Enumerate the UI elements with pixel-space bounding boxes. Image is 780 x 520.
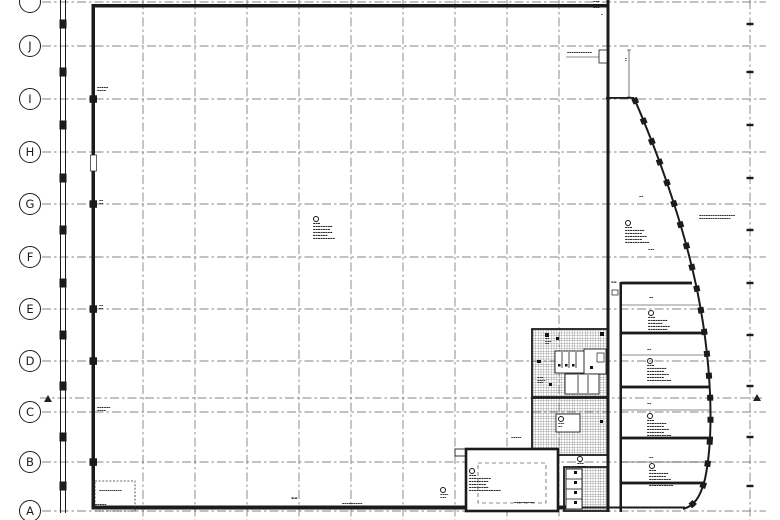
wall-tick	[60, 433, 66, 441]
wall-tick	[60, 482, 66, 490]
wall-tick	[60, 121, 66, 129]
grid-layer: JIHGFEDCBA	[20, 0, 767, 520]
dimension-tick	[747, 385, 754, 387]
wall-tick	[60, 226, 66, 234]
grid-row-label-G: G	[26, 197, 35, 211]
floorplan-stage: JIHGFEDCBA	[0, 0, 780, 520]
wall-tick	[60, 382, 66, 390]
wall-tick	[60, 331, 66, 339]
structural-column-marker	[90, 96, 97, 103]
dimension-tick	[747, 229, 754, 231]
dimension-tick	[747, 71, 754, 73]
dimension-tick	[747, 334, 754, 336]
grid-row-label-F: F	[27, 250, 34, 264]
wall-tick	[60, 20, 66, 28]
facade-curve-line	[634, 98, 711, 509]
dimension-tick	[747, 23, 754, 25]
structural-column-marker	[90, 306, 97, 313]
structural-column-marker	[90, 358, 97, 365]
grid-row-label-B: B	[26, 455, 34, 469]
axis-triangle-left	[44, 395, 52, 402]
dimension-tick	[747, 485, 754, 487]
grid-row-bubble-top	[20, 0, 41, 13]
structural-column-marker	[90, 201, 97, 208]
dimension-tick	[747, 282, 754, 284]
grid-row-label-I: I	[28, 92, 31, 106]
grid-row-label-H: H	[26, 145, 35, 159]
grid-row-label-D: D	[26, 354, 35, 368]
grid-row-label-C: C	[26, 405, 34, 419]
curved-facade	[634, 98, 711, 509]
dimension-tick	[747, 177, 754, 179]
dimension-tick	[747, 124, 754, 126]
axis-triangle-right	[753, 394, 761, 401]
structural-column-marker	[90, 459, 97, 466]
grid-row-label-J: J	[27, 39, 31, 53]
wall-tick	[60, 68, 66, 76]
floorplan-canvas: JIHGFEDCBA	[0, 0, 780, 520]
wall-tick	[60, 174, 66, 182]
grid-row-label-E: E	[26, 302, 33, 316]
wall-tick	[60, 279, 66, 287]
grid-row-label-A: A	[26, 504, 34, 518]
bottom-middle-room	[455, 449, 558, 511]
dimension-tick	[747, 436, 754, 438]
